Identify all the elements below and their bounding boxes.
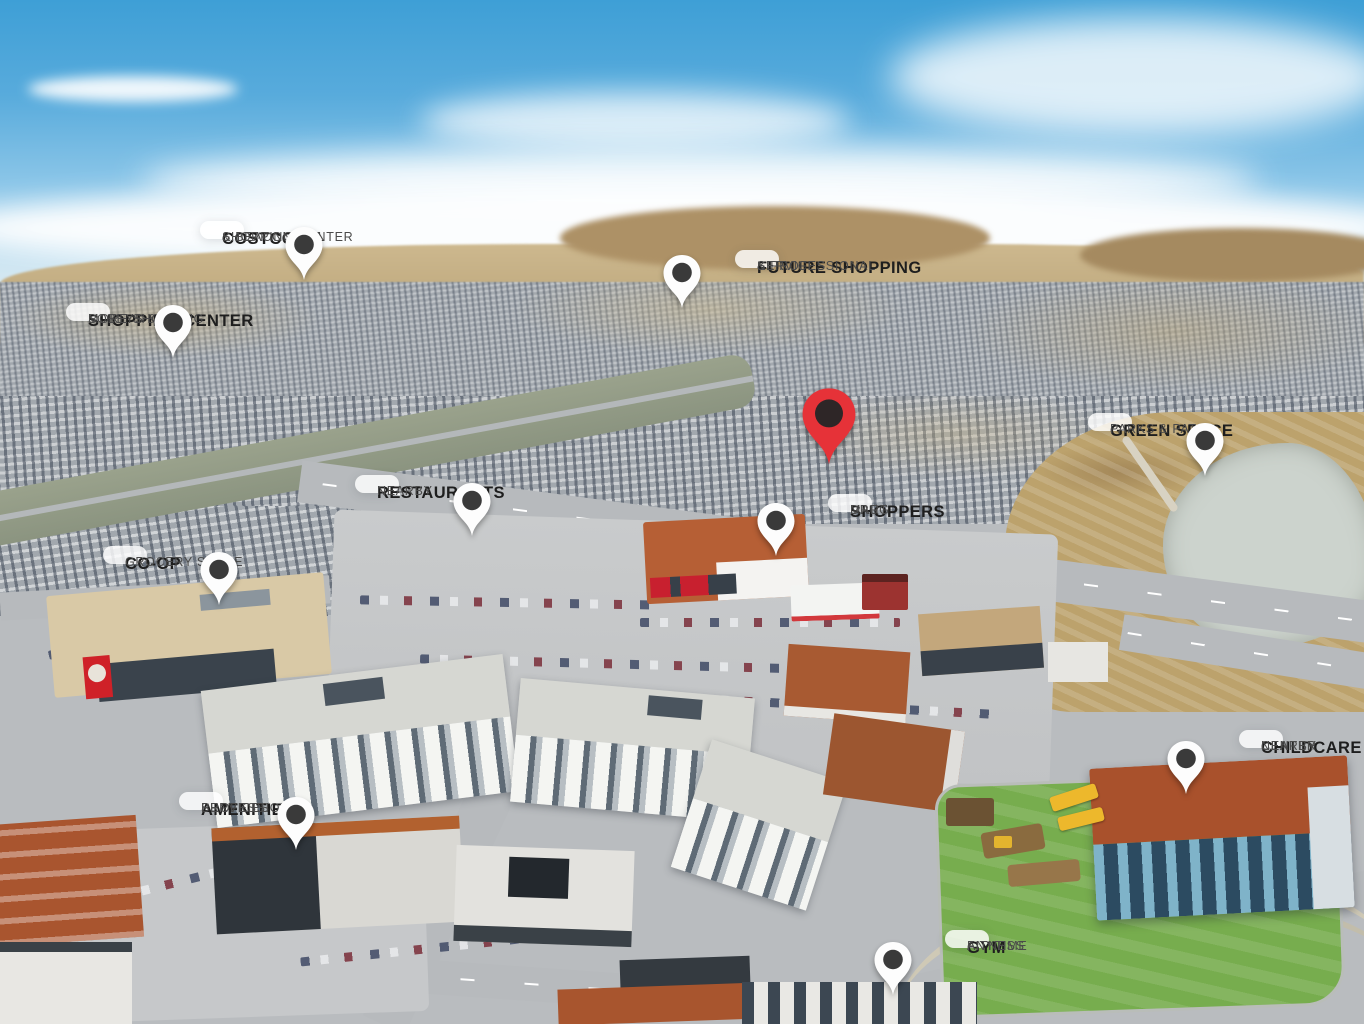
marker-subline: SERVICES bbox=[201, 801, 270, 816]
marker-subline: MART bbox=[850, 503, 888, 518]
marker-bubble: SHOPPERS DRUGMART bbox=[828, 494, 872, 512]
marker-bubble: RESTAURANTS NEARBY bbox=[355, 475, 399, 493]
location-pin-icon bbox=[276, 796, 316, 852]
marker-subline: FITNESS bbox=[967, 939, 1025, 954]
marker-bubble: GREEN SPACE PARKS & PATHS bbox=[1088, 413, 1132, 431]
marker-subline: SERVICES bbox=[757, 259, 826, 274]
marker-bubble: GYM ANYTIMEFITNESS bbox=[945, 930, 989, 948]
marker-bubble: COSTCO & BEACON HILLSHOPPING CENTER bbox=[200, 221, 244, 239]
marker-bubble: FUTURE SHOPPING & PROFESSIONALSERVICES bbox=[735, 250, 779, 268]
location-pin-icon bbox=[284, 226, 324, 282]
aerial-neighborhood-photo: COSTCO & BEACON HILLSHOPPING CENTER SHOP… bbox=[0, 0, 1364, 1024]
location-pin-icon bbox=[1166, 740, 1206, 796]
marker-bubble: CO-OP GROCERY STORE bbox=[103, 546, 147, 564]
location-pin-icon bbox=[199, 551, 239, 607]
marker-overlay: COSTCO & BEACON HILLSHOPPING CENTER SHOP… bbox=[0, 0, 1364, 1024]
location-pin-icon bbox=[452, 482, 492, 538]
marker-bubble: SHOPPING CENTER SOBEYS &MORE SHOPPING bbox=[66, 303, 110, 321]
location-pin-icon bbox=[1185, 422, 1225, 478]
location-pin-icon bbox=[153, 304, 193, 360]
location-pin-icon bbox=[662, 254, 702, 310]
marker-bubble: AMENITIES PROFESSIONALSERVICES bbox=[179, 792, 223, 810]
location-pin-icon bbox=[873, 941, 913, 997]
marker-bubble: CHILDCARE CENTERNEARBY bbox=[1239, 730, 1283, 748]
marker-subline: NEARBY bbox=[377, 484, 433, 499]
marker-subline: NEARBY bbox=[1261, 739, 1317, 754]
location-pin-icon bbox=[756, 502, 796, 558]
location-pin-icon bbox=[798, 387, 860, 467]
